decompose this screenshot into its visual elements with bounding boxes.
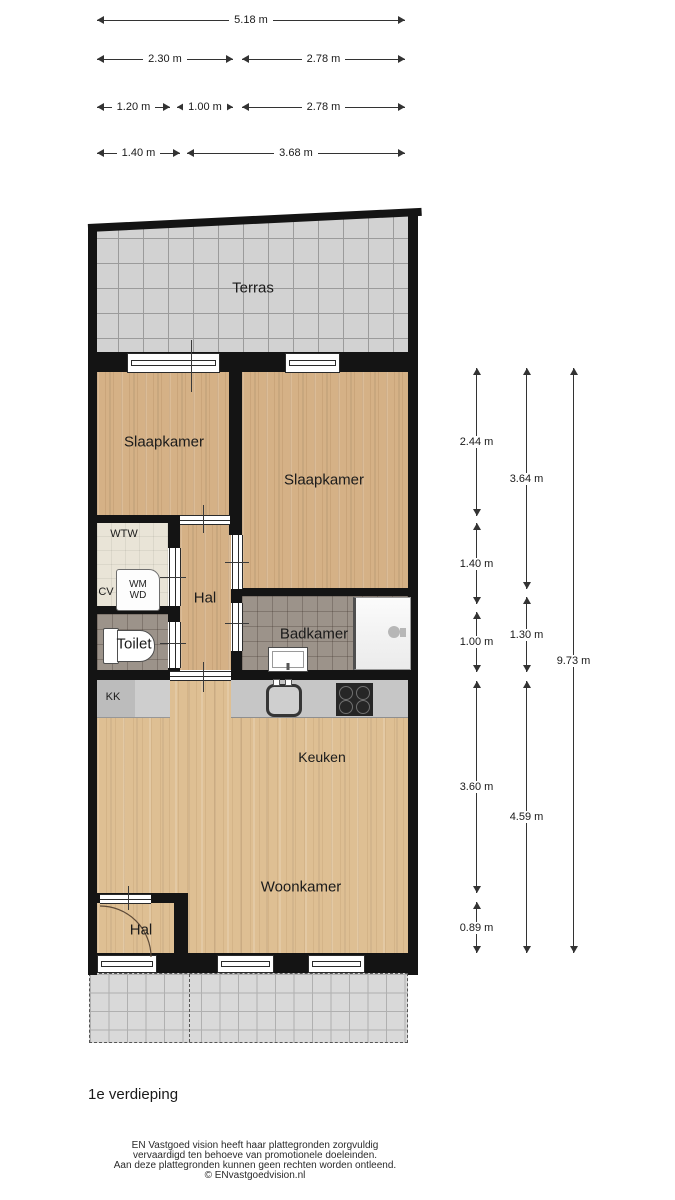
wd-label: WD: [130, 590, 147, 601]
tick-door-bedroom1: [203, 505, 204, 533]
label-hal-boven: Hal: [194, 590, 217, 607]
shower-head-icon: [388, 626, 400, 638]
washer-dryer-icon: WM WD: [116, 569, 160, 611]
tick-window-left: [191, 340, 192, 392]
dim-top-row2-right: 2.78 m: [242, 52, 405, 66]
tick-door-keuken: [203, 662, 204, 692]
kitchen-sink-icon: [266, 684, 302, 717]
dim-label: 2.78 m: [302, 53, 346, 65]
dim-label: 4.59 m: [505, 811, 549, 823]
wall-bedroom-divider: [229, 372, 242, 535]
dim-right-089: 0.89 m: [470, 902, 483, 953]
dim-right-total: 9.73 m: [567, 368, 580, 953]
dim-right-100: 1.00 m: [470, 612, 483, 672]
burner-icon: [356, 700, 370, 714]
wall-wtw-right-top: [168, 522, 180, 548]
dim-label: 1.30 m: [505, 629, 549, 641]
bathroom-sink-icon: [268, 647, 308, 672]
dim-top-row3-b: 1.00 m: [177, 100, 233, 114]
disclaimer: EN Vastgoed vision heeft haar plattegron…: [0, 1141, 510, 1181]
label-toilet: Toilet: [116, 636, 151, 653]
page-title: 1e verdieping: [88, 1086, 178, 1103]
window-slaapkamer-rechts: [285, 353, 340, 373]
wall-toilet-keuken: [88, 670, 170, 680]
dim-label: 2.44 m: [455, 436, 499, 448]
dim-label: 3.68 m: [274, 147, 318, 159]
wall-badkamer-keuken: [231, 670, 408, 680]
wall-hal-beneden-right: [174, 893, 188, 953]
label-woonkamer: Woonkamer: [261, 879, 342, 896]
tick-door-wtw: [160, 577, 186, 578]
wall-outer-left: [88, 228, 97, 975]
label-hal-beneden: Hal: [130, 922, 153, 939]
window-woonkamer-2: [308, 955, 365, 973]
label-keuken: Keuken: [298, 749, 345, 765]
balkon-divider-line: [189, 974, 190, 1042]
floorplan-page: { "page": { "floor_title": "1e verdiepin…: [0, 0, 675, 1200]
dim-right-360: 3.60 m: [470, 681, 483, 893]
dim-label: 9.73 m: [552, 655, 596, 667]
label-badkamer: Badkamer: [280, 626, 348, 643]
dim-top-row4-b: 3.68 m: [187, 146, 405, 160]
dim-right-364: 3.64 m: [520, 368, 533, 589]
dim-label: 3.64 m: [505, 473, 549, 485]
label-slaapkamer-links: Slaapkamer: [124, 434, 204, 451]
shower-stem-icon: [400, 628, 406, 637]
dim-label: 0.89 m: [455, 922, 499, 934]
door-toilet: [169, 622, 181, 668]
dim-label: 1.40 m: [455, 558, 499, 570]
dim-right-130: 1.30 m: [520, 597, 533, 672]
dim-top-total: 5.18 m: [97, 13, 405, 27]
dim-label: 5.18 m: [229, 14, 273, 26]
dim-top-row3-c: 2.78 m: [242, 100, 405, 114]
cooktop-icon: [336, 683, 373, 716]
dim-top-row4-a: 1.40 m: [97, 146, 180, 160]
kitchen-counter: [231, 680, 408, 718]
dim-label: 2.78 m: [302, 101, 346, 113]
dim-label: 1.20 m: [112, 101, 156, 113]
shower-cabin: [353, 597, 411, 670]
wall-hal-right-junction: [231, 589, 242, 603]
wall-wtw-right-junction: [168, 606, 180, 622]
dim-label: 3.60 m: [455, 781, 499, 793]
tick-door-badkamer: [225, 623, 249, 624]
dim-label: 1.00 m: [455, 636, 499, 648]
label-kk: KK: [106, 691, 121, 703]
faucet-knob: [285, 679, 292, 686]
wm-label: WM: [129, 579, 147, 590]
dim-right-244: 2.44 m: [470, 368, 483, 516]
door-slaapkamer-links: [180, 515, 230, 525]
label-wtw: WTW: [110, 528, 137, 540]
wall-outer-right: [408, 212, 418, 975]
balkon-floor: [89, 973, 408, 1043]
dim-label: 1.00 m: [183, 101, 227, 113]
faucet-knob: [273, 679, 280, 686]
door-badkamer: [232, 603, 243, 651]
burner-icon: [339, 700, 353, 714]
burner-icon: [356, 686, 370, 700]
label-terras: Terras: [232, 280, 274, 297]
dim-label: 2.30 m: [143, 53, 187, 65]
dim-right-459: 4.59 m: [520, 681, 533, 953]
door-hal-keuken: [170, 671, 231, 681]
window-slaapkamer-links: [127, 353, 220, 373]
dim-top-row3-a: 1.20 m: [97, 100, 170, 114]
burner-icon: [339, 686, 353, 700]
dim-top-row2-left: 2.30 m: [97, 52, 233, 66]
disclaimer-line: © ENvastgoedvision.nl: [0, 1171, 510, 1181]
dim-right-140: 1.40 m: [470, 523, 483, 604]
window-woonkamer-1: [217, 955, 274, 973]
tick-door-bedroom2: [225, 562, 249, 563]
wall-bedroom2-badkamer: [242, 588, 408, 596]
label-slaapkamer-rechts: Slaapkamer: [284, 472, 364, 489]
tick-door-toilet: [160, 643, 186, 644]
label-cv: CV: [98, 586, 113, 598]
dim-label: 1.40 m: [117, 147, 161, 159]
